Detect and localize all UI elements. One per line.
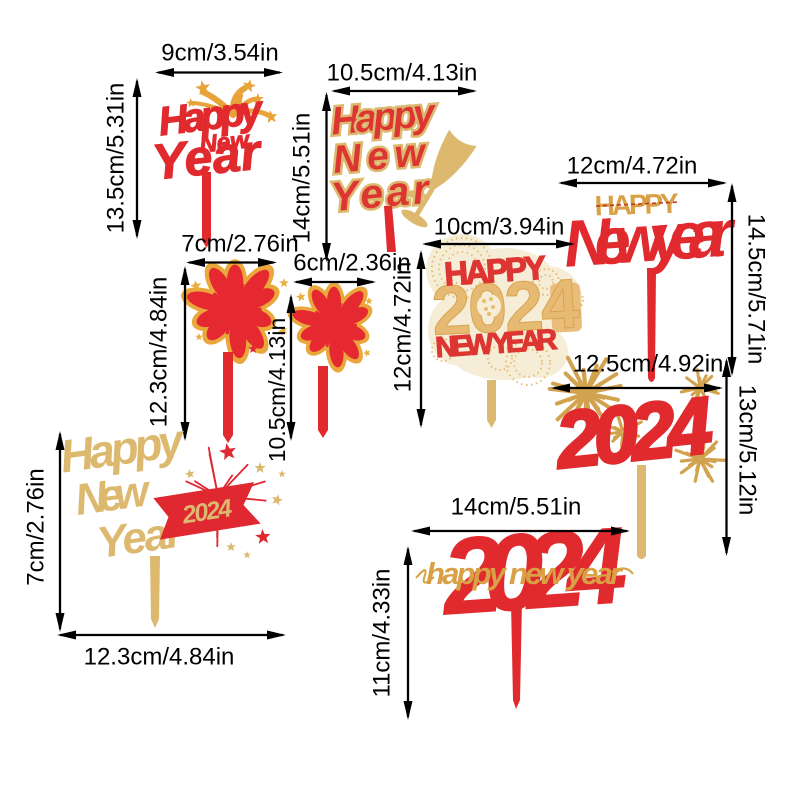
svg-text:2024: 2024 (550, 380, 716, 485)
svg-text:New: New (198, 126, 251, 158)
svg-text:7cm/2.76in: 7cm/2.76in (23, 468, 50, 585)
svg-text:13.5cm/5.31in: 13.5cm/5.31in (103, 83, 130, 234)
svg-text:14cm/5.51in: 14cm/5.51in (289, 113, 316, 244)
svg-text:14.5cm/5.71in: 14.5cm/5.71in (743, 214, 770, 365)
svg-text:happy new year: happy new year (426, 556, 624, 591)
svg-text:7cm/2.76in: 7cm/2.76in (181, 231, 298, 258)
svg-text:13cm/5.12in: 13cm/5.12in (734, 385, 761, 516)
svg-text:HAPPY: HAPPY (443, 249, 547, 293)
svg-text:12.3cm/4.84in: 12.3cm/4.84in (146, 277, 173, 428)
svg-text:10.5cm/4.13in: 10.5cm/4.13in (327, 60, 478, 87)
svg-text:14cm/5.51in: 14cm/5.51in (451, 494, 582, 521)
svg-text:12cm/4.72in: 12cm/4.72in (390, 262, 417, 393)
svg-text:9cm/3.54in: 9cm/3.54in (161, 40, 278, 67)
svg-text:10.5cm/4.13in: 10.5cm/4.13in (264, 318, 290, 462)
svg-text:Year: Year (329, 166, 433, 221)
svg-text:11cm/4.33in: 11cm/4.33in (369, 569, 396, 698)
svg-text:12cm/4.72in: 12cm/4.72in (567, 153, 698, 180)
svg-text:12.5cm/4.92in: 12.5cm/4.92in (573, 351, 724, 378)
svg-text:12.3cm/4.84in: 12.3cm/4.84in (84, 644, 235, 671)
svg-text:10cm/3.94in: 10cm/3.94in (434, 214, 565, 241)
